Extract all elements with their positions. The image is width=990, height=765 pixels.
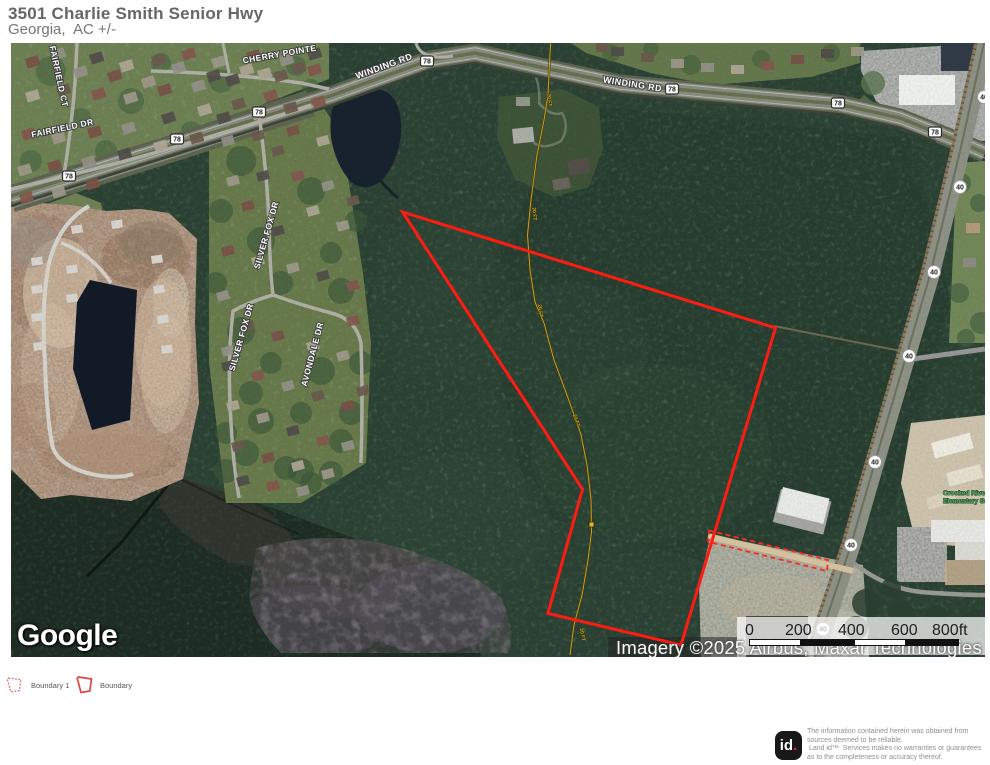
- svg-text:40: 40: [905, 354, 913, 361]
- svg-text:40: 40: [956, 185, 964, 192]
- svg-text:78: 78: [65, 174, 73, 181]
- svg-text:20 FT: 20 FT: [545, 93, 552, 107]
- svg-text:78: 78: [668, 87, 676, 94]
- svg-text:20 FT: 20 FT: [530, 207, 537, 221]
- svg-text:78: 78: [834, 101, 842, 108]
- svg-text:40: 40: [871, 460, 879, 467]
- svg-text:78: 78: [931, 130, 939, 137]
- svg-text:40: 40: [930, 270, 938, 277]
- svg-text:78: 78: [423, 59, 431, 66]
- svg-text:40: 40: [847, 543, 855, 550]
- svg-text:78: 78: [255, 110, 263, 117]
- svg-text:78: 78: [173, 137, 181, 144]
- svg-text:Elementary Sch: Elementary Sch: [943, 498, 985, 505]
- svg-text:Crooked Rive: Crooked Rive: [943, 490, 985, 497]
- svg-text:40: 40: [980, 95, 985, 102]
